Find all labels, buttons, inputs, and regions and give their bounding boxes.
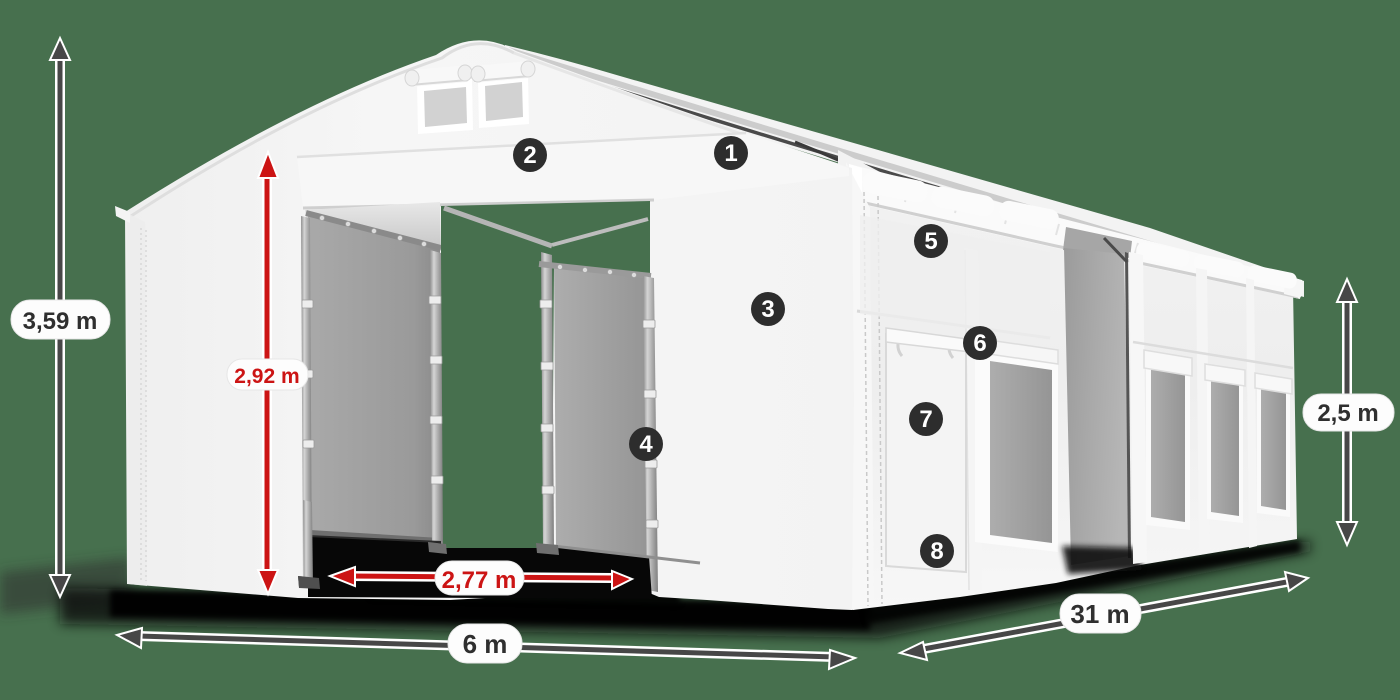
svg-text:1: 1 — [724, 140, 737, 167]
svg-text:6: 6 — [973, 330, 986, 357]
svg-text:31 m: 31 m — [1070, 599, 1129, 629]
svg-text:2,5 m: 2,5 m — [1317, 400, 1378, 427]
svg-text:7: 7 — [919, 406, 932, 433]
svg-text:2,77 m: 2,77 m — [442, 567, 517, 594]
svg-text:5: 5 — [924, 228, 937, 255]
svg-text:3: 3 — [761, 296, 774, 323]
svg-text:8: 8 — [930, 538, 943, 565]
svg-text:2: 2 — [523, 142, 536, 169]
svg-text:3,59 m: 3,59 m — [23, 308, 98, 335]
svg-text:2,92 m: 2,92 m — [234, 365, 299, 388]
svg-text:4: 4 — [639, 431, 653, 458]
svg-text:6 m: 6 m — [463, 629, 508, 659]
